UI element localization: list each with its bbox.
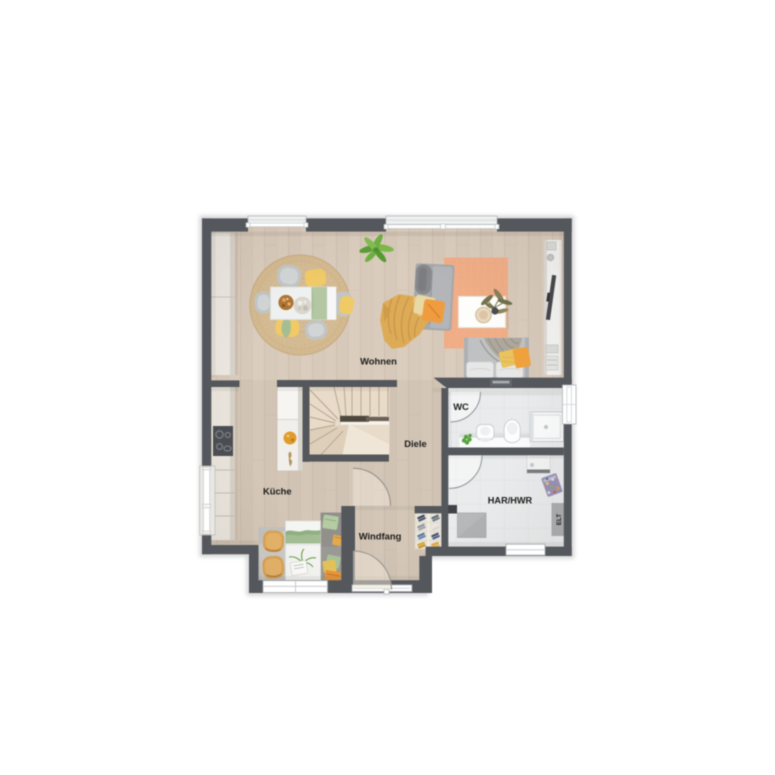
svg-text:Küche: Küche [263,485,292,496]
svg-text:ELT: ELT [556,514,563,525]
svg-text:HAR/HWR: HAR/HWR [488,495,533,505]
svg-text:Diele: Diele [404,438,426,449]
svg-text:Windfang: Windfang [359,530,402,541]
svg-text:WC: WC [453,401,469,412]
svg-text:Wohnen: Wohnen [360,356,397,367]
